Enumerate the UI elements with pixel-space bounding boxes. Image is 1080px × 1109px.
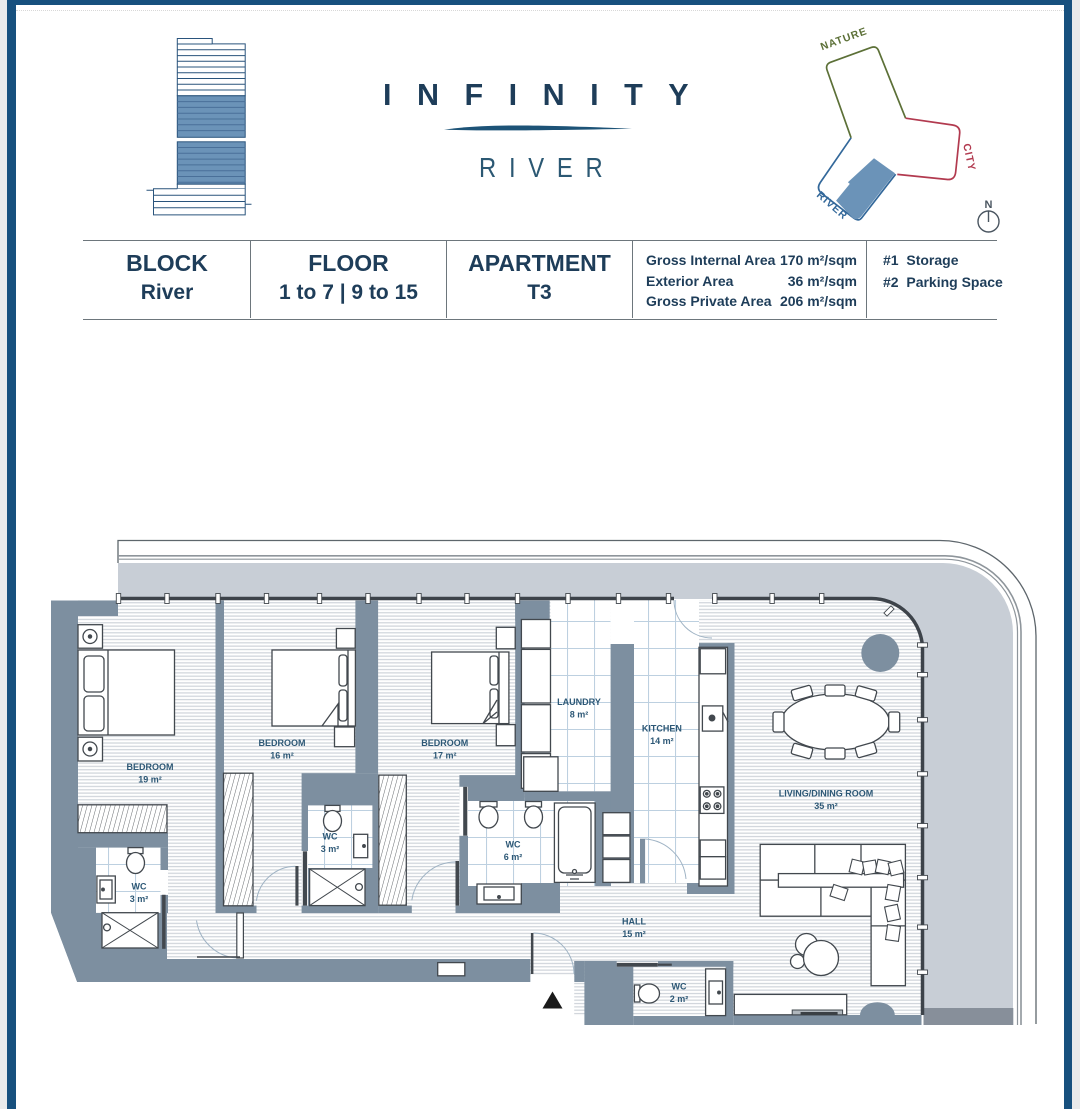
svg-text:BEDROOM: BEDROOM (421, 738, 468, 748)
svg-text:14 m²: 14 m² (650, 736, 674, 746)
svg-text:WC: WC (132, 882, 147, 892)
svg-text:WC: WC (323, 832, 338, 842)
svg-text:3 m²: 3 m² (321, 844, 340, 854)
svg-text:WC: WC (672, 982, 687, 992)
svg-text:HALL: HALL (622, 917, 646, 927)
svg-text:2 m²: 2 m² (670, 994, 689, 1004)
svg-text:6 m²: 6 m² (504, 852, 523, 862)
svg-text:KITCHEN: KITCHEN (642, 724, 682, 734)
svg-text:15 m²: 15 m² (622, 929, 646, 939)
svg-text:LIVING/DINING ROOM: LIVING/DINING ROOM (779, 789, 874, 799)
svg-text:35 m²: 35 m² (814, 801, 838, 811)
svg-text:LAUNDRY: LAUNDRY (557, 697, 601, 707)
svg-text:BEDROOM: BEDROOM (259, 738, 306, 748)
svg-text:N: N (985, 199, 993, 211)
svg-text:16 m²: 16 m² (270, 751, 294, 761)
svg-text:NATURE: NATURE (819, 25, 869, 53)
svg-text:CITY: CITY (960, 142, 978, 172)
svg-text:BEDROOM: BEDROOM (127, 762, 174, 772)
svg-text:3 m²: 3 m² (130, 894, 149, 904)
svg-text:8 m²: 8 m² (570, 710, 589, 720)
svg-text:17 m²: 17 m² (433, 751, 457, 761)
svg-text:WC: WC (506, 840, 521, 850)
svg-text:19 m²: 19 m² (138, 775, 162, 785)
